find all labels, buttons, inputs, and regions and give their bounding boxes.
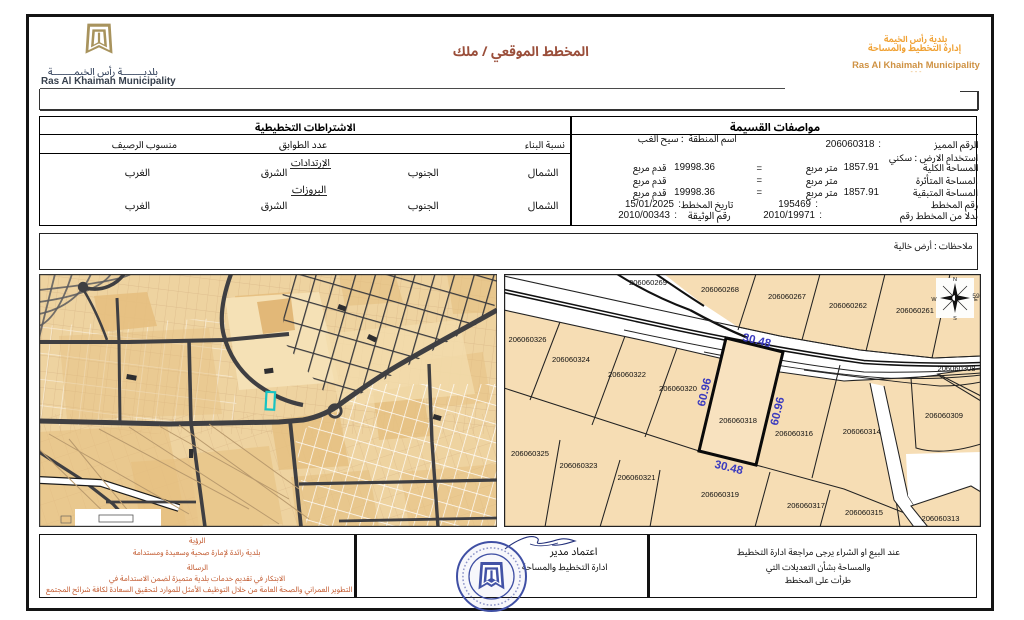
svg-text:206060326: 206060326 — [508, 335, 546, 344]
svg-text:206060261: 206060261 — [896, 306, 934, 315]
svg-text:206060322: 206060322 — [608, 370, 646, 379]
svg-text:206060321: 206060321 — [617, 473, 655, 482]
svg-text:206060316: 206060316 — [775, 429, 813, 438]
svg-text:206060267: 206060267 — [768, 292, 806, 301]
svg-text:206060323: 206060323 — [559, 461, 597, 470]
svg-text:206060309: 206060309 — [925, 411, 963, 420]
svg-text:59: 59 — [972, 293, 980, 300]
svg-text:W: W — [931, 297, 937, 303]
svg-text:206060314: 206060314 — [843, 427, 881, 436]
svg-text:206060325: 206060325 — [511, 449, 549, 458]
svg-text:206060268: 206060268 — [701, 285, 739, 294]
svg-text:206060262: 206060262 — [829, 301, 867, 310]
svg-text:206060320: 206060320 — [659, 384, 697, 393]
svg-text:206060269: 206060269 — [629, 278, 667, 287]
svg-text:206060324: 206060324 — [552, 355, 590, 364]
svg-text:206060313: 206060313 — [921, 514, 959, 523]
svg-text:206060318: 206060318 — [719, 416, 757, 425]
svg-text:N: N — [953, 277, 957, 283]
svg-text:206060317: 206060317 — [787, 501, 825, 510]
svg-text:206060319: 206060319 — [701, 490, 739, 499]
svg-text:206060315: 206060315 — [845, 508, 883, 517]
svg-text:206060308: 206060308 — [937, 364, 975, 373]
svg-text:S: S — [953, 316, 957, 322]
